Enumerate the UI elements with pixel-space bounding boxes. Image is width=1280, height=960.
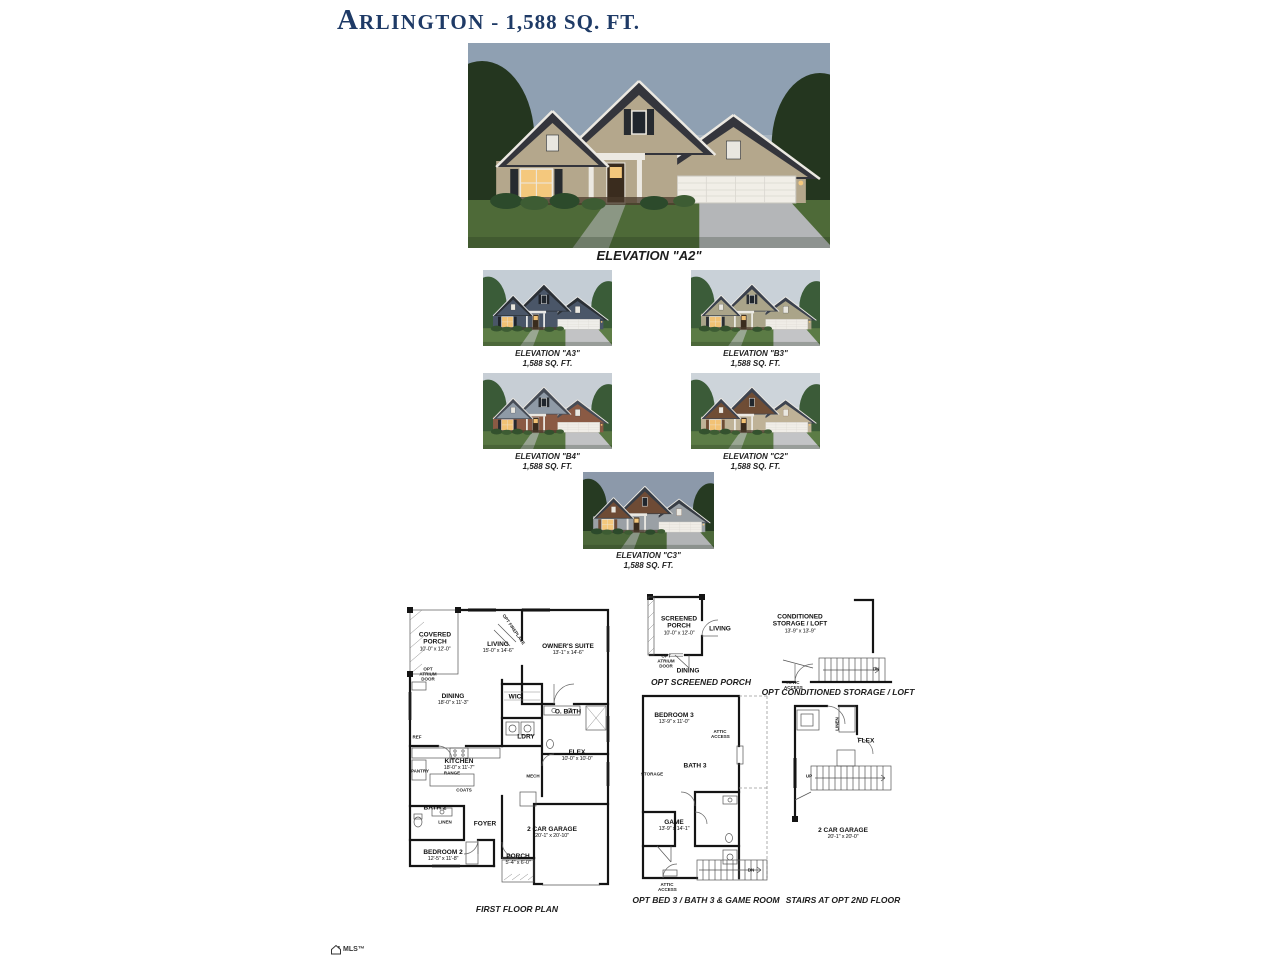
room-name: FLEX <box>569 749 586 756</box>
label-s2-up: UP <box>806 775 812 780</box>
room-name: OWNER'S SUITE <box>542 643 594 650</box>
room-name: FOYER <box>474 820 496 827</box>
label-b3-storage: STORAGE <box>641 773 663 778</box>
opt-bed3-caption: OPT BED 3 / BATH 3 & GAME ROOM <box>632 895 779 905</box>
opt-storage-caption: OPT CONDITIONED STORAGE / LOFT <box>762 687 915 697</box>
label-sp-opt-atrium-door: OPT ATRIUM DOOR <box>657 655 675 670</box>
room-name: WIC <box>509 693 522 700</box>
sqft-line: 1,588 SQ. FT. <box>731 359 781 368</box>
mls-logo: MLS™ <box>330 944 365 955</box>
room-dims: 13'-9" x 13'-9" <box>768 628 832 634</box>
sqft-line: 1,588 SQ. FT. <box>523 359 573 368</box>
thumbnail-caption-b4: ELEVATION "B4" 1,588 SQ. FT. <box>483 452 612 473</box>
room-label-s2-flex: FLEX <box>858 737 875 744</box>
room-name: PORCH <box>506 853 529 860</box>
room-name: BATH 3 <box>684 762 707 769</box>
room-name: LIVING <box>487 641 509 648</box>
label-pantry: PANTRY <box>411 770 429 775</box>
room-dims: 5'-4" x 6'-0" <box>505 861 530 867</box>
room-name: BATH 2 <box>424 804 447 811</box>
first-floor-plan-caption: FIRST FLOOR PLAN <box>476 904 558 914</box>
room-label-bath2: BATH 2 <box>424 804 447 811</box>
label-b3-dn: DN <box>748 869 755 874</box>
room-label-ldry: LDRY <box>517 733 534 740</box>
thumbnail-caption-b3: ELEVATION "B3" 1,588 SQ. FT. <box>691 349 820 370</box>
room-name: FLEX <box>858 737 875 744</box>
caption-line: ELEVATION "B4" <box>515 452 580 461</box>
main-elevation-caption: ELEVATION "A2" <box>468 248 830 263</box>
label-linen: LINEN <box>438 821 452 826</box>
sqft-line: 1,588 SQ. FT. <box>731 462 781 471</box>
room-name: BEDROOM 3 <box>654 712 693 719</box>
room-dims: 13'-1" x 14'-6" <box>542 651 594 657</box>
thumbnail-caption-c3: ELEVATION "C3" 1,588 SQ. FT. <box>583 551 714 572</box>
title-initial: A <box>337 4 359 36</box>
thumbnail-elevation-a3 <box>483 270 612 346</box>
label-b3-attic-access: ATTIC ACCESS <box>711 730 729 740</box>
thumbnail-caption-c2: ELEVATION "C2" 1,588 SQ. FT. <box>691 452 820 473</box>
room-name: DINING <box>677 667 700 674</box>
room-dims: 12'-5" x 11'-8" <box>423 857 462 863</box>
label-opt-atrium-door: OPT ATRIUM DOOR <box>419 668 437 683</box>
room-name: KITCHEN <box>445 758 474 765</box>
room-label-dining: DINING 18'-0" x 11'-3" <box>438 693 468 707</box>
room-label-bedroom3: BEDROOM 3 13'-9" x 11'-0" <box>654 712 693 726</box>
opt-stairs-caption: STAIRS AT OPT 2ND FLOOR <box>786 895 901 905</box>
room-dims: 10'-0" x 12'-0" <box>409 646 461 652</box>
room-name: LDRY <box>517 733 534 740</box>
room-dims: 18'-0" x 11'-3" <box>438 701 468 707</box>
room-label-wic: WIC <box>509 693 522 700</box>
room-dims: 10'-0" x 10'-0" <box>562 757 593 763</box>
label-ref: REF <box>413 736 422 741</box>
room-name: 2 CAR GARAGE <box>818 827 868 834</box>
room-dims: 13'-9" x 11'-0" <box>654 720 693 726</box>
room-label-sp-living: LIVING <box>709 625 731 632</box>
thumbnail-elevation-b3 <box>691 270 820 346</box>
room-name: GAME <box>664 819 684 826</box>
room-label-s2-garage: 2 CAR GARAGE 20'-1" x 20'-0" <box>818 827 868 841</box>
room-name: CONDITIONED STORAGE / LOFT <box>773 613 827 627</box>
label-b3-attic-access-2: ATTIC ACCESS <box>658 883 676 893</box>
room-dims: 20'-1" x 20'-10" <box>527 834 577 840</box>
opt-stairs-drawing <box>787 698 905 906</box>
room-dims: 13'-9" x 14'-1" <box>659 827 690 833</box>
thumbnail-elevation-c3 <box>583 472 714 549</box>
caption-line: ELEVATION "C2" <box>723 452 788 461</box>
room-name: O. BATH <box>555 708 581 715</box>
house-icon <box>330 944 342 955</box>
room-label-bath3: BATH 3 <box>684 762 707 769</box>
room-label-living: LIVING 15'-0" x 14'-6" <box>483 641 514 655</box>
room-label-owners-suite: OWNER'S SUITE 13'-1" x 14'-6" <box>542 643 594 657</box>
label-st-dn: DN <box>873 668 880 673</box>
room-label-cond-storage: CONDITIONED STORAGE / LOFT 13'-9" x 13'-… <box>768 613 832 634</box>
title-sqft: - 1,588 SQ. FT. <box>485 10 640 34</box>
room-label-garage: 2 CAR GARAGE 20'-1" x 20'-10" <box>527 826 577 840</box>
room-name: BEDROOM 2 <box>423 849 462 856</box>
room-label-sp-dining: DINING <box>677 667 700 674</box>
mls-logo-text: MLS™ <box>343 946 365 953</box>
caption-line: ELEVATION "A3" <box>515 349 580 358</box>
room-name: LIVING <box>709 625 731 632</box>
room-label-foyer: FOYER <box>474 820 496 827</box>
room-label-flex: FLEX 10'-0" x 10'-0" <box>562 749 593 763</box>
thumbnail-elevation-c2 <box>691 373 820 449</box>
room-dims: 10'-0" x 12'-0" <box>657 630 701 636</box>
label-s2-linen: LINEN <box>836 717 841 731</box>
label-coats: COATS <box>456 789 471 794</box>
page-title: ARLINGTON - 1,588 SQ. FT. <box>337 4 640 37</box>
sqft-line: 1,588 SQ. FT. <box>624 561 674 570</box>
room-label-covered-porch: COVERED PORCH 10'-0" x 12'-0" <box>409 631 461 652</box>
caption-line: ELEVATION "B3" <box>723 349 788 358</box>
label-range: RANGE <box>444 772 460 777</box>
room-name: COVERED PORCH <box>419 631 451 645</box>
room-name: DINING <box>442 693 465 700</box>
thumbnail-elevation-b4 <box>483 373 612 449</box>
room-label-bedroom2: BEDROOM 2 12'-5" x 11'-8" <box>423 849 462 863</box>
room-label-game: GAME 13'-9" x 14'-1" <box>659 819 690 833</box>
thumbnail-caption-a3: ELEVATION "A3" 1,588 SQ. FT. <box>483 349 612 370</box>
main-elevation-photo <box>468 43 830 248</box>
flyer-page: ARLINGTON - 1,588 SQ. FT. ELEVATION "A2"… <box>0 0 1280 960</box>
room-name: SCREENED PORCH <box>661 615 697 629</box>
sqft-line: 1,588 SQ. FT. <box>523 462 573 471</box>
title-name: RLINGTON <box>359 10 485 34</box>
room-label-obath: O. BATH <box>555 708 581 715</box>
opt-screened-porch-drawing <box>645 592 785 684</box>
room-label-porch: PORCH 5'-4" x 6'-0" <box>505 853 530 867</box>
room-name: 2 CAR GARAGE <box>527 826 577 833</box>
caption-line: ELEVATION "C3" <box>616 551 681 560</box>
opt-screened-porch-caption: OPT SCREENED PORCH <box>651 677 751 687</box>
room-dims: 15'-0" x 14'-6" <box>483 649 514 655</box>
room-dims: 20'-1" x 20'-0" <box>818 835 868 841</box>
room-label-screened-porch: SCREENED PORCH 10'-0" x 12'-0" <box>657 615 701 636</box>
label-mech: MECH <box>526 775 539 780</box>
